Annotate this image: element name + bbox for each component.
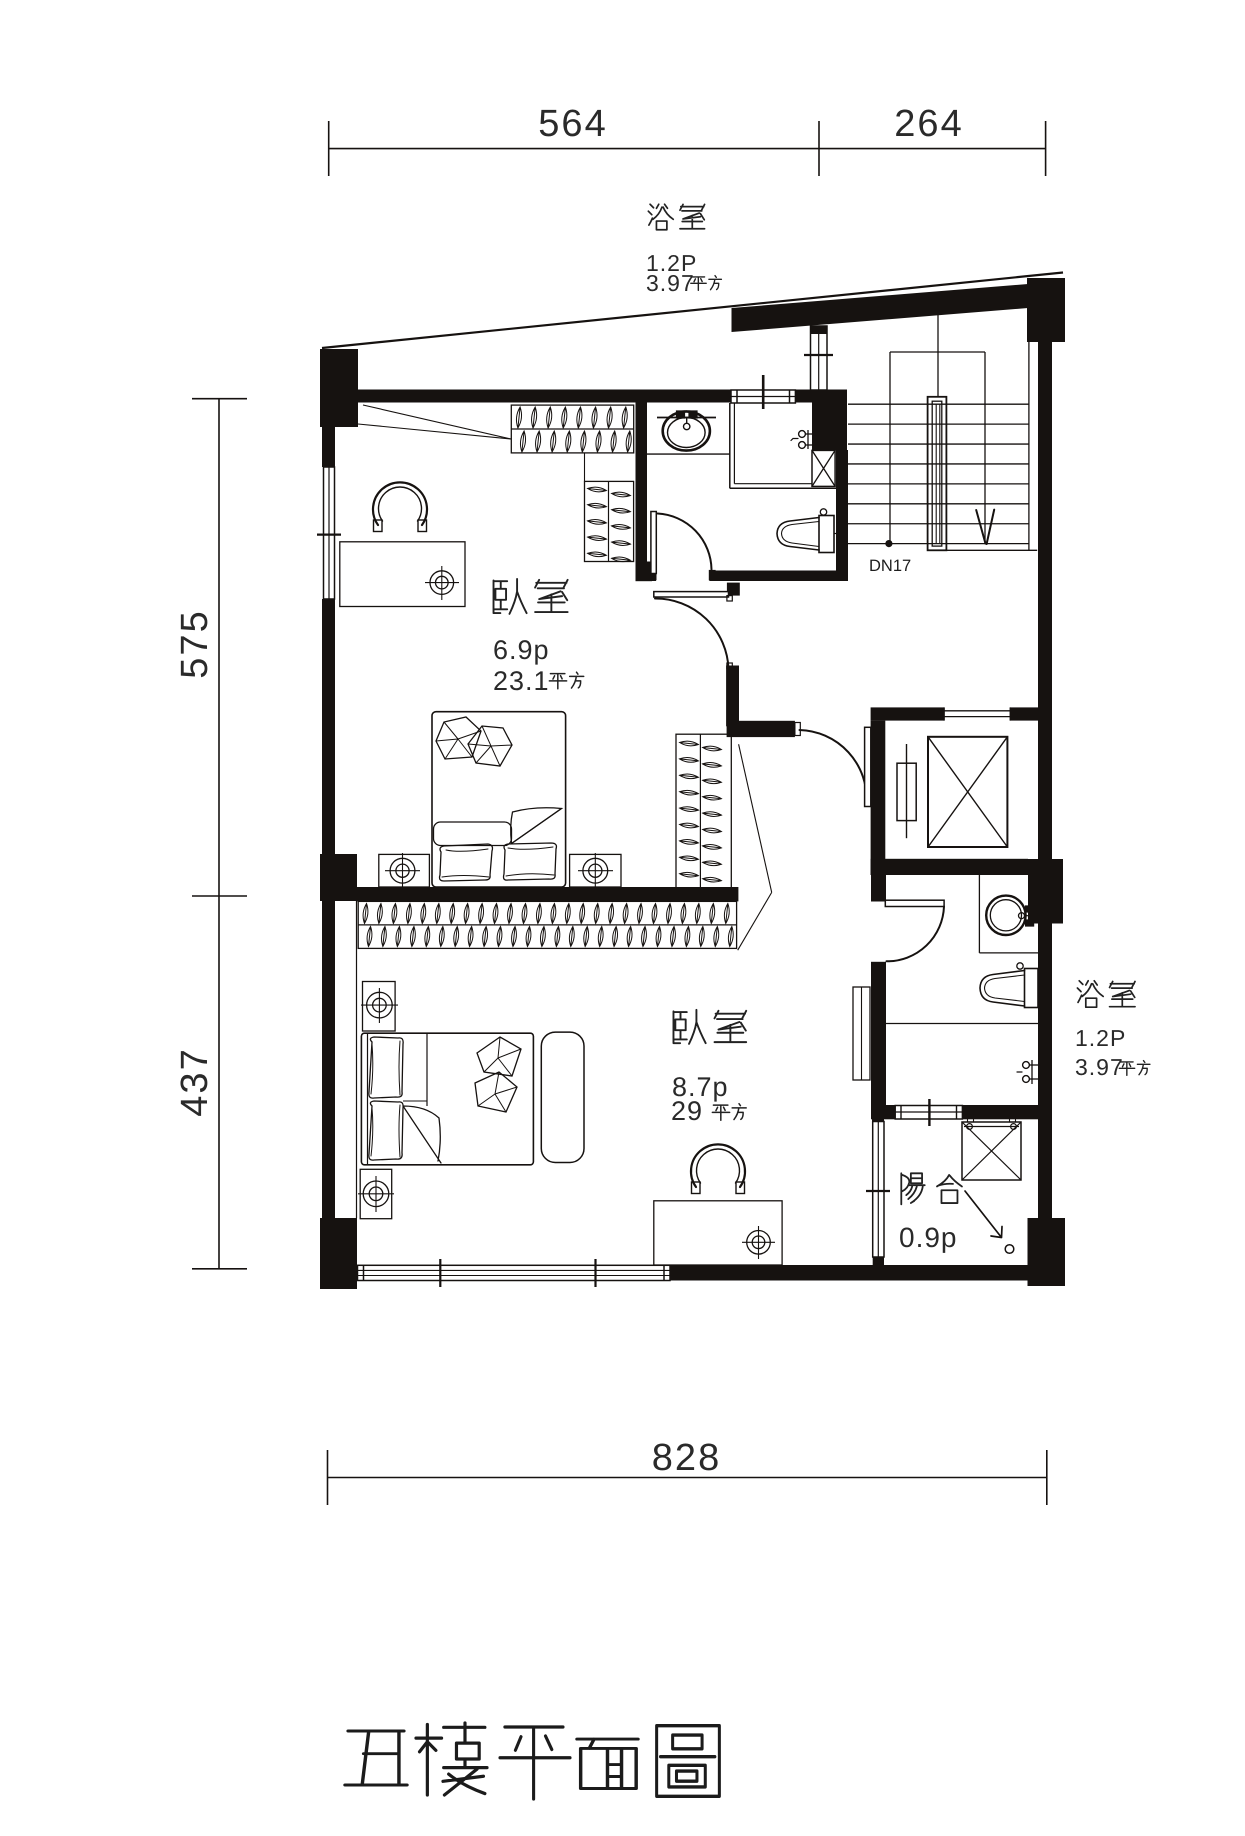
svg-text:3.97: 3.97 (646, 270, 695, 296)
svg-text:1.2P: 1.2P (1075, 1025, 1126, 1051)
svg-text:264: 264 (894, 103, 963, 145)
svg-text:23.1: 23.1 (493, 666, 550, 696)
svg-text:564: 564 (538, 103, 607, 145)
svg-text:6.9p: 6.9p (493, 635, 550, 665)
svg-text:828: 828 (652, 1437, 721, 1479)
svg-text:437: 437 (174, 1047, 216, 1116)
svg-text:0.9p: 0.9p (899, 1222, 958, 1253)
svg-text:3.97: 3.97 (1075, 1054, 1124, 1080)
svg-text:575: 575 (174, 609, 216, 678)
svg-text:29: 29 (671, 1096, 703, 1126)
svg-text:DN17: DN17 (869, 557, 911, 575)
